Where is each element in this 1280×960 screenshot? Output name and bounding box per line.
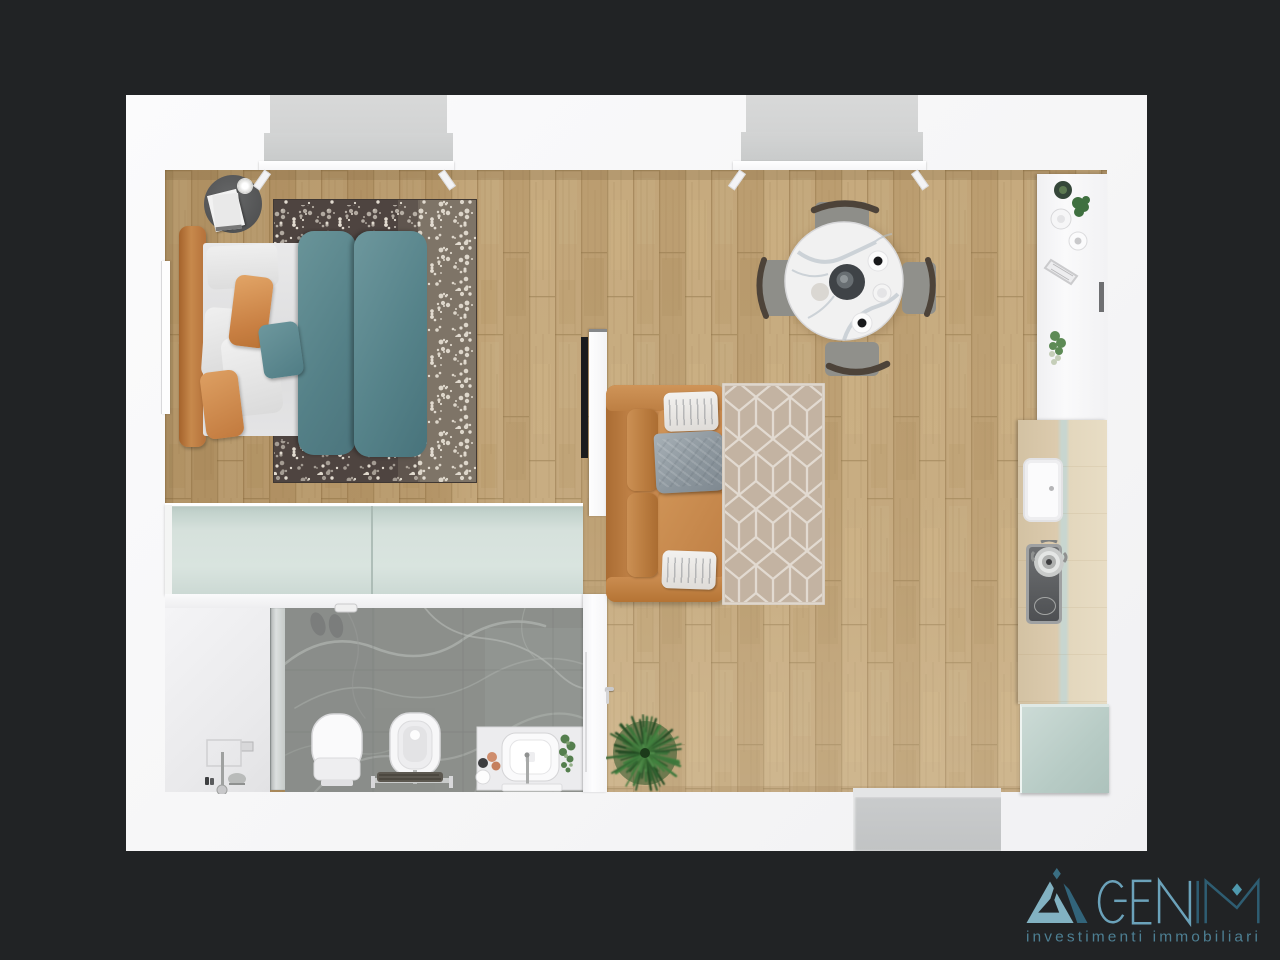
- svg-text:investimenti immobiliari: investimenti immobiliari: [1026, 929, 1261, 946]
